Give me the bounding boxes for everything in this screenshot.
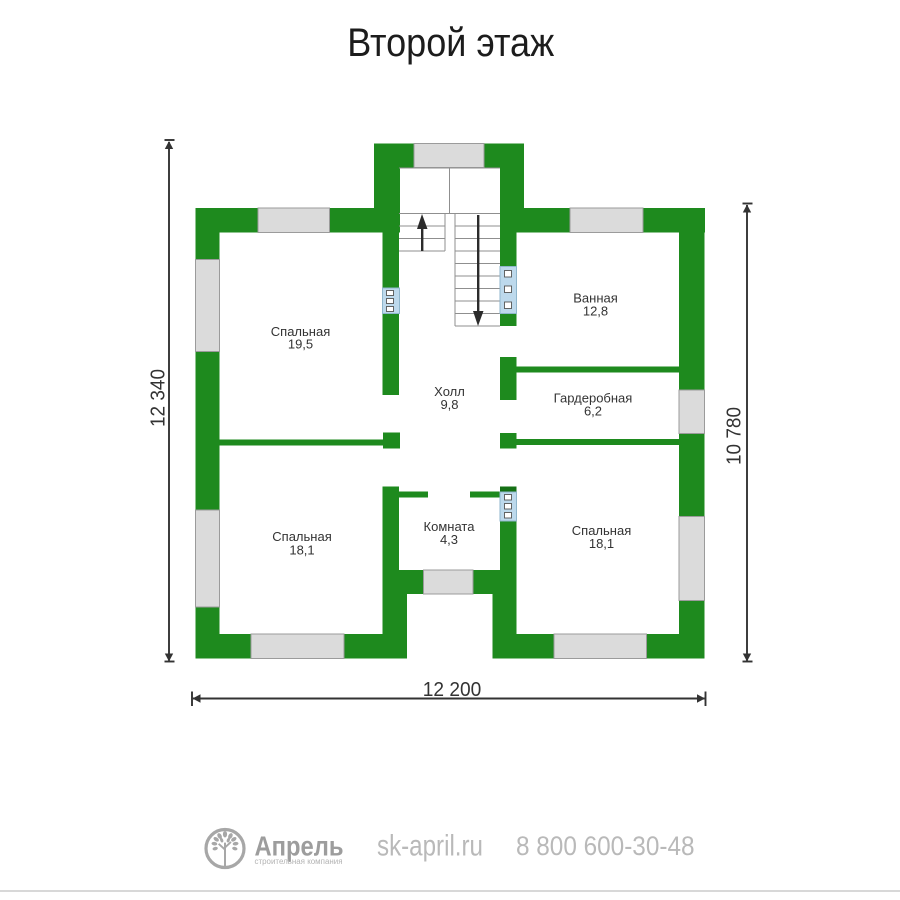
- svg-text:Второй этаж: Второй этаж: [347, 21, 554, 65]
- svg-text:строительная компания: строительная компания: [255, 857, 343, 866]
- svg-text:10 780: 10 780: [723, 407, 746, 465]
- svg-text:12 340: 12 340: [147, 369, 170, 427]
- svg-text:9,8: 9,8: [440, 397, 458, 412]
- svg-text:8 800 600-30-48: 8 800 600-30-48: [516, 831, 695, 861]
- svg-text:12,8: 12,8: [583, 304, 608, 319]
- svg-text:6,2: 6,2: [584, 404, 602, 419]
- svg-text:12 200: 12 200: [423, 678, 482, 701]
- svg-text:18,1: 18,1: [589, 536, 614, 551]
- svg-text:19,5: 19,5: [288, 337, 313, 352]
- svg-text:sk-april.ru: sk-april.ru: [377, 830, 483, 863]
- svg-text:4,3: 4,3: [440, 532, 458, 547]
- svg-text:18,1: 18,1: [289, 543, 314, 558]
